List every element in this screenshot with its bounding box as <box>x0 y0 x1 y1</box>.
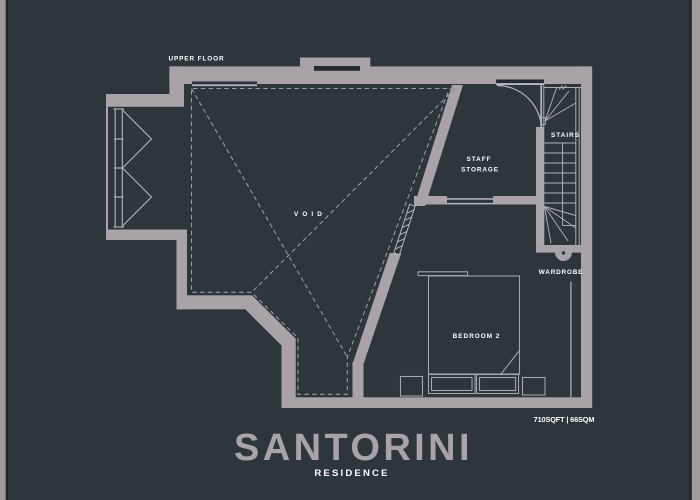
svg-text:SANTORINI: SANTORINI <box>234 427 473 469</box>
svg-text:UPPER FLOOR: UPPER FLOOR <box>168 56 224 63</box>
svg-text:VOID: VOID <box>294 211 326 218</box>
svg-text:710SQFT | 66SQM: 710SQFT | 66SQM <box>534 415 595 424</box>
svg-text:STORAGE: STORAGE <box>461 167 499 174</box>
svg-text:STAIRS: STAIRS <box>551 132 580 139</box>
svg-text:RESIDENCE: RESIDENCE <box>314 468 389 479</box>
svg-text:STAFF: STAFF <box>466 156 491 163</box>
svg-text:WARDROBE: WARDROBE <box>539 269 583 276</box>
svg-text:BEDROOM 2: BEDROOM 2 <box>453 333 501 340</box>
